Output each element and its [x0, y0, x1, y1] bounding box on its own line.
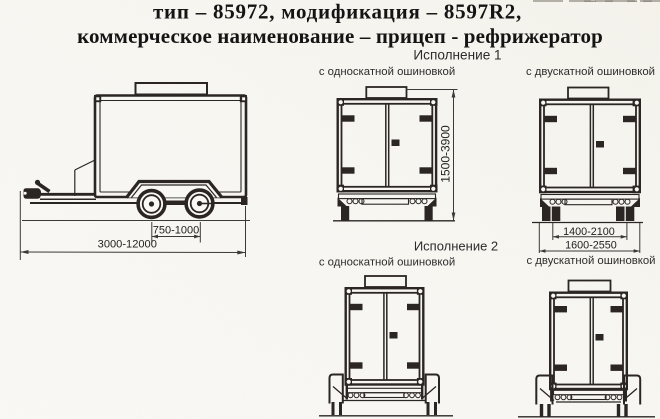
svg-text:1400-2100: 1400-2100 [563, 226, 615, 238]
svg-text:750-1000: 750-1000 [153, 225, 200, 237]
svg-text:с двускатной ошиновкой: с двускатной ошиновкой [526, 66, 655, 78]
svg-text:Исполнение 2: Исполнение 2 [414, 239, 498, 254]
svg-text:с двускатной ошиновкой: с двускатной ошиновкой [526, 255, 655, 267]
svg-text:Исполнение 1: Исполнение 1 [413, 48, 501, 63]
svg-text:коммерческое наименование – пр: коммерческое наименование – прицеп - реф… [77, 24, 603, 48]
svg-text:1600-2550: 1600-2550 [565, 240, 617, 252]
svg-text:тип – 85972, модификация – 859: тип – 85972, модификация – 8597R2, [153, 0, 522, 24]
svg-text:1500-3900: 1500-3900 [438, 125, 452, 183]
svg-text:3000-12000: 3000-12000 [98, 239, 157, 251]
svg-text:с односкатной ошиновкой: с односкатной ошиновкой [319, 257, 455, 269]
svg-text:с односкатной ошиновкой: с односкатной ошиновкой [319, 66, 455, 78]
